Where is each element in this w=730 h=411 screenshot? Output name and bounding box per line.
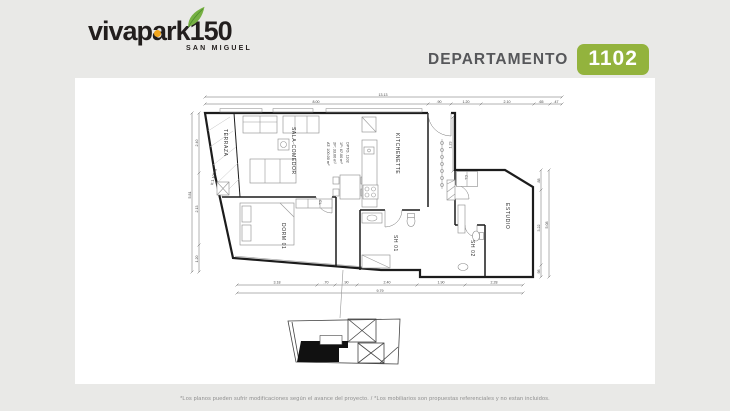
dim-label: .88: [537, 179, 541, 184]
dim-right-total: 5.08: [545, 222, 549, 229]
unit-header: DEPARTAMENTO 1102: [428, 44, 649, 75]
unit-info-2p: 2P: 33.00 m²: [333, 142, 337, 164]
dimension-lines-top: 13.13 8.00 .90 1.20 2.10 .65 .47: [204, 93, 564, 106]
closet-label-1: CL: [318, 200, 322, 205]
dim-label: 2.10: [504, 100, 511, 104]
dim-label: 2.40: [384, 281, 391, 285]
dimension-lines-right: .88 3.22 .98 5.08 1.23: [449, 116, 551, 279]
brand-name: vivapark: [88, 16, 190, 46]
dim-label: 2.13: [195, 206, 199, 213]
unit-info-dpto: DPTO. 1102: [346, 142, 350, 163]
disclaimer-text: *Los planos pueden sufrir modificaciones…: [0, 396, 730, 402]
dim-label: .90: [344, 281, 349, 285]
room-label-dorm: DORM 01: [280, 223, 286, 249]
dim-bottom-total: 9.79: [377, 289, 384, 293]
page-title: DEPARTAMENTO: [428, 51, 568, 69]
room-label-terraza: TERRAZA: [222, 129, 228, 157]
dim-label: 1.90: [438, 281, 445, 285]
dim-label: 1.20: [463, 100, 470, 104]
room-label-sh1: SH 01: [392, 235, 398, 252]
brand-subtitle: SAN MIGUEL: [88, 45, 258, 52]
unit-info-block: AT: 100.00 m² 2P: 33.00 m² 1P: 67.00 m² …: [326, 142, 350, 166]
room-label-kitchenette: KITCHENETTE: [394, 133, 400, 174]
unit-info-at: AT: 100.00 m²: [326, 142, 330, 166]
floor-plan: 13.13 8.00 .90 1.20 2.10 .65 .47 3.18 .7…: [170, 85, 580, 385]
dim-top-total: 13.13: [379, 93, 388, 97]
dim-hall: 1.23: [449, 142, 453, 149]
dim-label: .90: [437, 100, 442, 104]
dim-label: .98: [537, 270, 541, 275]
dim-label: 1.20: [195, 256, 199, 263]
dim-label: 8.00: [313, 100, 320, 104]
flyer-page: vivapark150 SAN MIGUEL DEPARTAMENTO 1102…: [0, 0, 730, 411]
dim-label: .65: [539, 100, 544, 104]
dimension-lines-left: 5.81 2.40 2.13 1.20: [188, 112, 201, 274]
dim-label: 3.22: [537, 225, 541, 232]
dim-label: 2.28: [491, 281, 498, 285]
unit-info-1p: 1P: 67.00 m²: [339, 142, 343, 164]
room-label-sala: SALA-COMEDOR: [290, 127, 296, 175]
dim-label: .70: [324, 281, 329, 285]
leaf-icon: [182, 1, 210, 34]
room-label-estudio: ESTUDIO: [504, 203, 510, 229]
unit-number-badge: 1102: [577, 44, 649, 75]
dimension-lines-bottom: 3.18 .70 .90 2.40 1.90 2.28 9.79: [236, 281, 525, 295]
furniture: [240, 116, 484, 271]
dim-left-total: 5.81: [188, 192, 192, 199]
dim-label: .47: [554, 100, 559, 104]
orange-dot-icon: [154, 30, 161, 37]
room-label-sh2: SH 02: [469, 240, 475, 257]
dim-label: 3.18: [274, 281, 281, 285]
closet-label-2: CL: [464, 175, 468, 180]
brand-logo: vivapark150 SAN MIGUEL: [88, 16, 258, 52]
dim-label: 2.40: [195, 140, 199, 147]
